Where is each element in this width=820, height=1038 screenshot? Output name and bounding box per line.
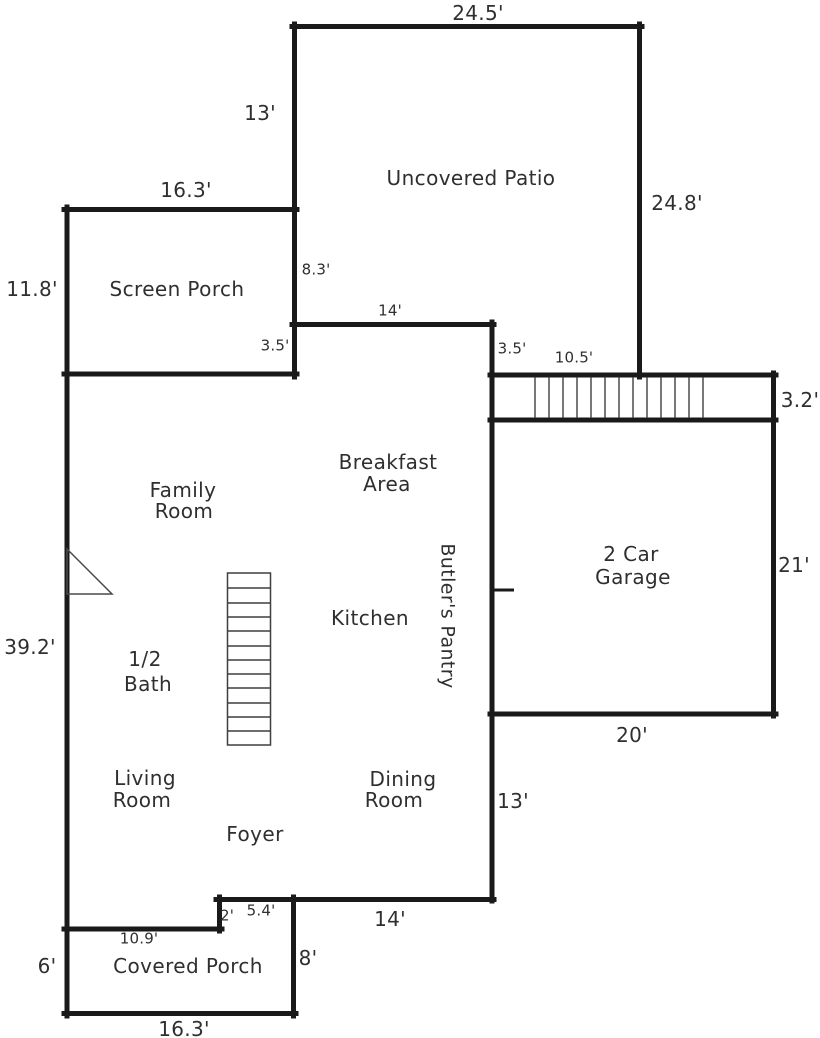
dim-house-bottom: 14' (374, 909, 406, 929)
room-label-breakfast-area-line1: Breakfast (339, 452, 438, 472)
interior-staircase-icon (228, 573, 271, 745)
dim-covered-porch-left: 6' (38, 956, 57, 976)
dim-step-horizontal: 5.4' (247, 904, 276, 919)
room-label-covered-porch: Covered Porch (113, 956, 263, 976)
dim-covered-porch-top: 10.9' (120, 932, 159, 947)
dim-garage-bottom: 20' (616, 725, 648, 745)
room-label-garage-line1: 2 Car (603, 544, 659, 564)
dim-ext-stairs-top: 10.5' (555, 351, 594, 366)
dim-patio-left: 13' (244, 103, 276, 123)
room-label-screen-porch: Screen Porch (110, 279, 245, 299)
dim-house-left: 39.2' (4, 637, 56, 657)
room-label-family-room-line2: Room (155, 501, 214, 521)
dim-covered-porch-right: 8' (299, 948, 318, 968)
dim-ext-stairs-right: 3.2' (781, 390, 820, 410)
room-label-garage-line2: Garage (595, 567, 671, 587)
door-swing-icon (67, 549, 112, 594)
dim-screen-porch-left: 11.8' (6, 279, 58, 299)
dim-screen-porch-right: 8.3' (302, 263, 331, 278)
room-label-family-room-line1: Family (150, 480, 217, 500)
dim-step-vertical: 2' (220, 909, 234, 924)
exterior-stairs-icon (535, 377, 703, 418)
floor-plan: Uncovered Patio Screen Porch Breakfast A… (0, 0, 820, 1038)
dim-garage-right: 21' (778, 555, 810, 575)
room-label-kitchen: Kitchen (331, 608, 409, 628)
floor-plan-drawing (0, 0, 820, 1038)
dim-house-right: 13' (497, 791, 529, 811)
dim-screen-porch-top: 16.3' (160, 180, 212, 200)
room-label-dining-room-line2: Room (365, 790, 424, 810)
dim-wall-3-5-right: 3.5' (498, 342, 527, 357)
dim-breakfast-top: 14' (378, 304, 402, 319)
room-label-half-bath-line2: Bath (124, 674, 172, 694)
room-label-butlers-pantry: Butler's Pantry (438, 543, 457, 688)
dim-wall-3-5-left: 3.5' (261, 339, 290, 354)
room-label-dining-room-line1: Dining (370, 769, 437, 789)
dim-covered-porch-bottom: 16.3' (158, 1019, 210, 1038)
room-label-living-room-line1: Living (114, 768, 176, 788)
room-label-breakfast-area-line2: Area (363, 474, 411, 494)
dim-patio-top: 24.5' (452, 3, 504, 23)
room-label-living-room-line2: Room (113, 790, 172, 810)
room-label-uncovered-patio: Uncovered Patio (387, 168, 556, 188)
room-label-half-bath-line1: 1/2 (128, 649, 161, 669)
room-label-foyer: Foyer (226, 824, 283, 844)
dim-patio-right: 24.8' (651, 193, 703, 213)
